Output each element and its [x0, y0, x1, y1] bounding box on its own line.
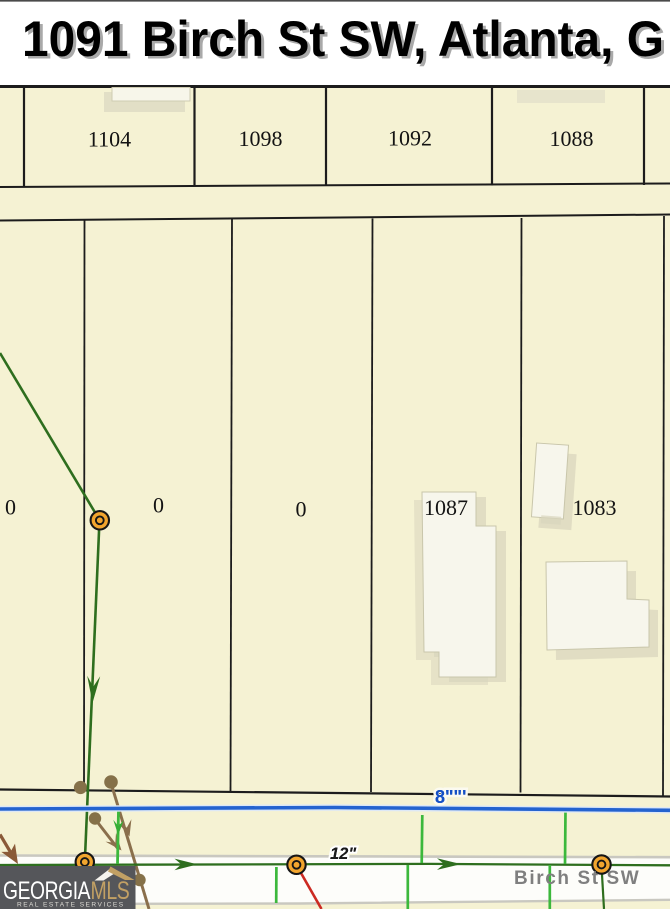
svg-text:1091 Birch St SW, Atlanta, G: 1091 Birch St SW, Atlanta, G [22, 11, 664, 67]
svg-text:1083: 1083 [573, 495, 617, 520]
svg-text:GEORGIA: GEORGIA [3, 877, 91, 905]
svg-text:1087: 1087 [424, 495, 468, 520]
svg-text:Birch St SW: Birch St SW [514, 868, 640, 889]
svg-text:1092: 1092 [388, 126, 432, 151]
svg-text:MLS: MLS [91, 877, 130, 905]
svg-text:0: 0 [153, 493, 164, 518]
svg-text:1104: 1104 [88, 127, 131, 152]
svg-text:1088: 1088 [550, 126, 594, 151]
svg-text:0: 0 [5, 495, 16, 520]
svg-text:1098: 1098 [239, 126, 283, 151]
svg-text:8""': 8""' [435, 787, 466, 807]
svg-text:0: 0 [296, 497, 307, 522]
svg-text:REAL ESTATE SERVICES: REAL ESTATE SERVICES [17, 902, 125, 909]
svg-text:12": 12" [330, 845, 356, 863]
